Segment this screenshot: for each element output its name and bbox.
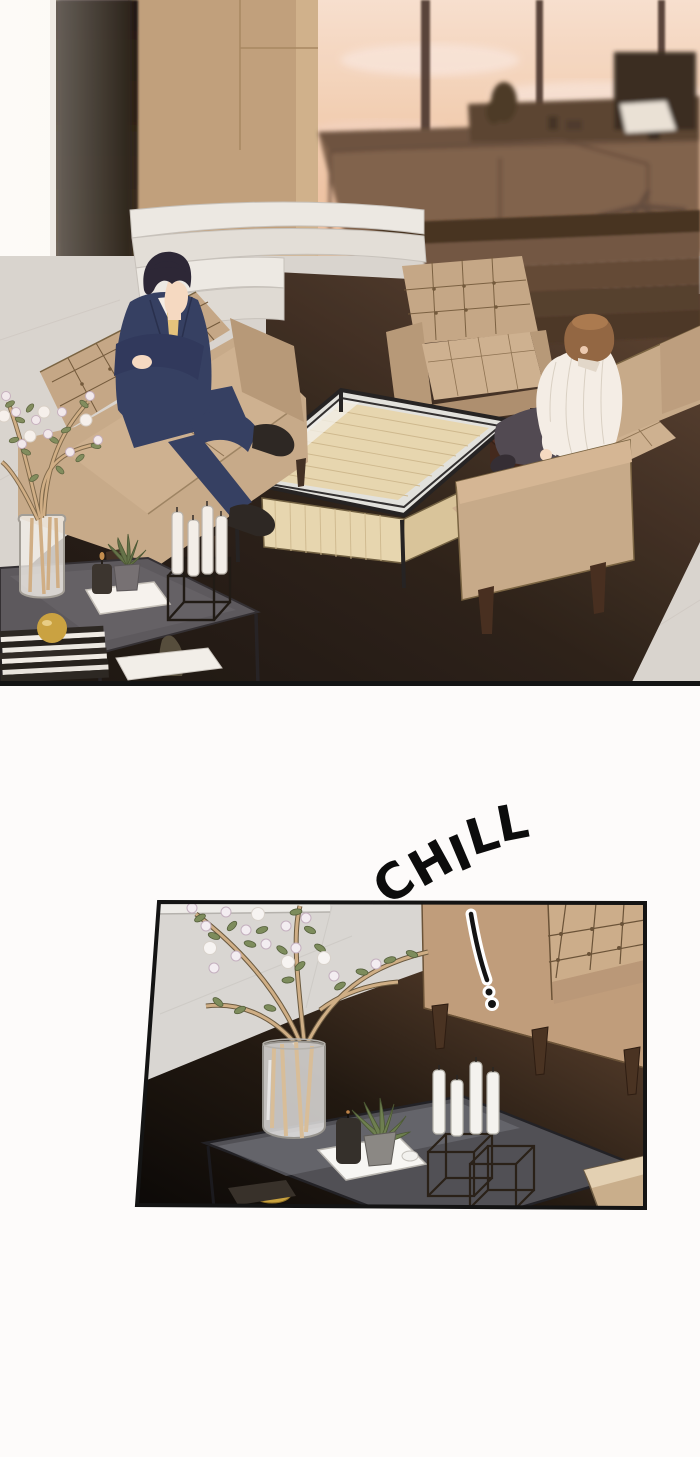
wall-base <box>150 896 330 914</box>
panel-1 <box>0 0 700 686</box>
panel-1-art <box>0 0 700 686</box>
panel-2-art <box>120 888 655 1218</box>
panel-1-border <box>0 681 700 686</box>
warm-tint <box>0 0 700 686</box>
small-dish <box>402 1151 418 1161</box>
glass-vase <box>263 1039 325 1138</box>
webtoon-page: CHILL <box>0 0 700 1457</box>
panel-2 <box>120 888 655 1218</box>
